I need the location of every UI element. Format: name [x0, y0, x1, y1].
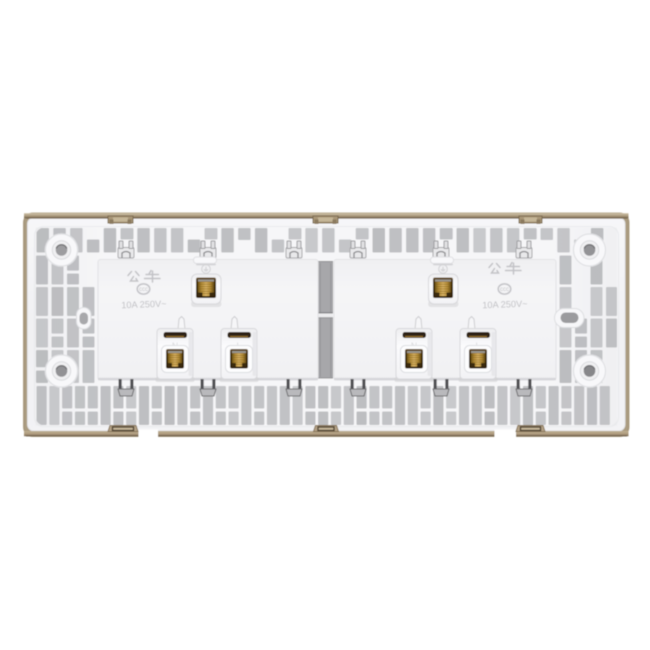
svg-text:10A 250V~: 10A 250V~ [482, 299, 528, 311]
svg-text:ccc: ccc [139, 287, 148, 293]
svg-text:10A 250V~: 10A 250V~ [121, 299, 167, 311]
svg-text:ccc: ccc [500, 287, 509, 293]
